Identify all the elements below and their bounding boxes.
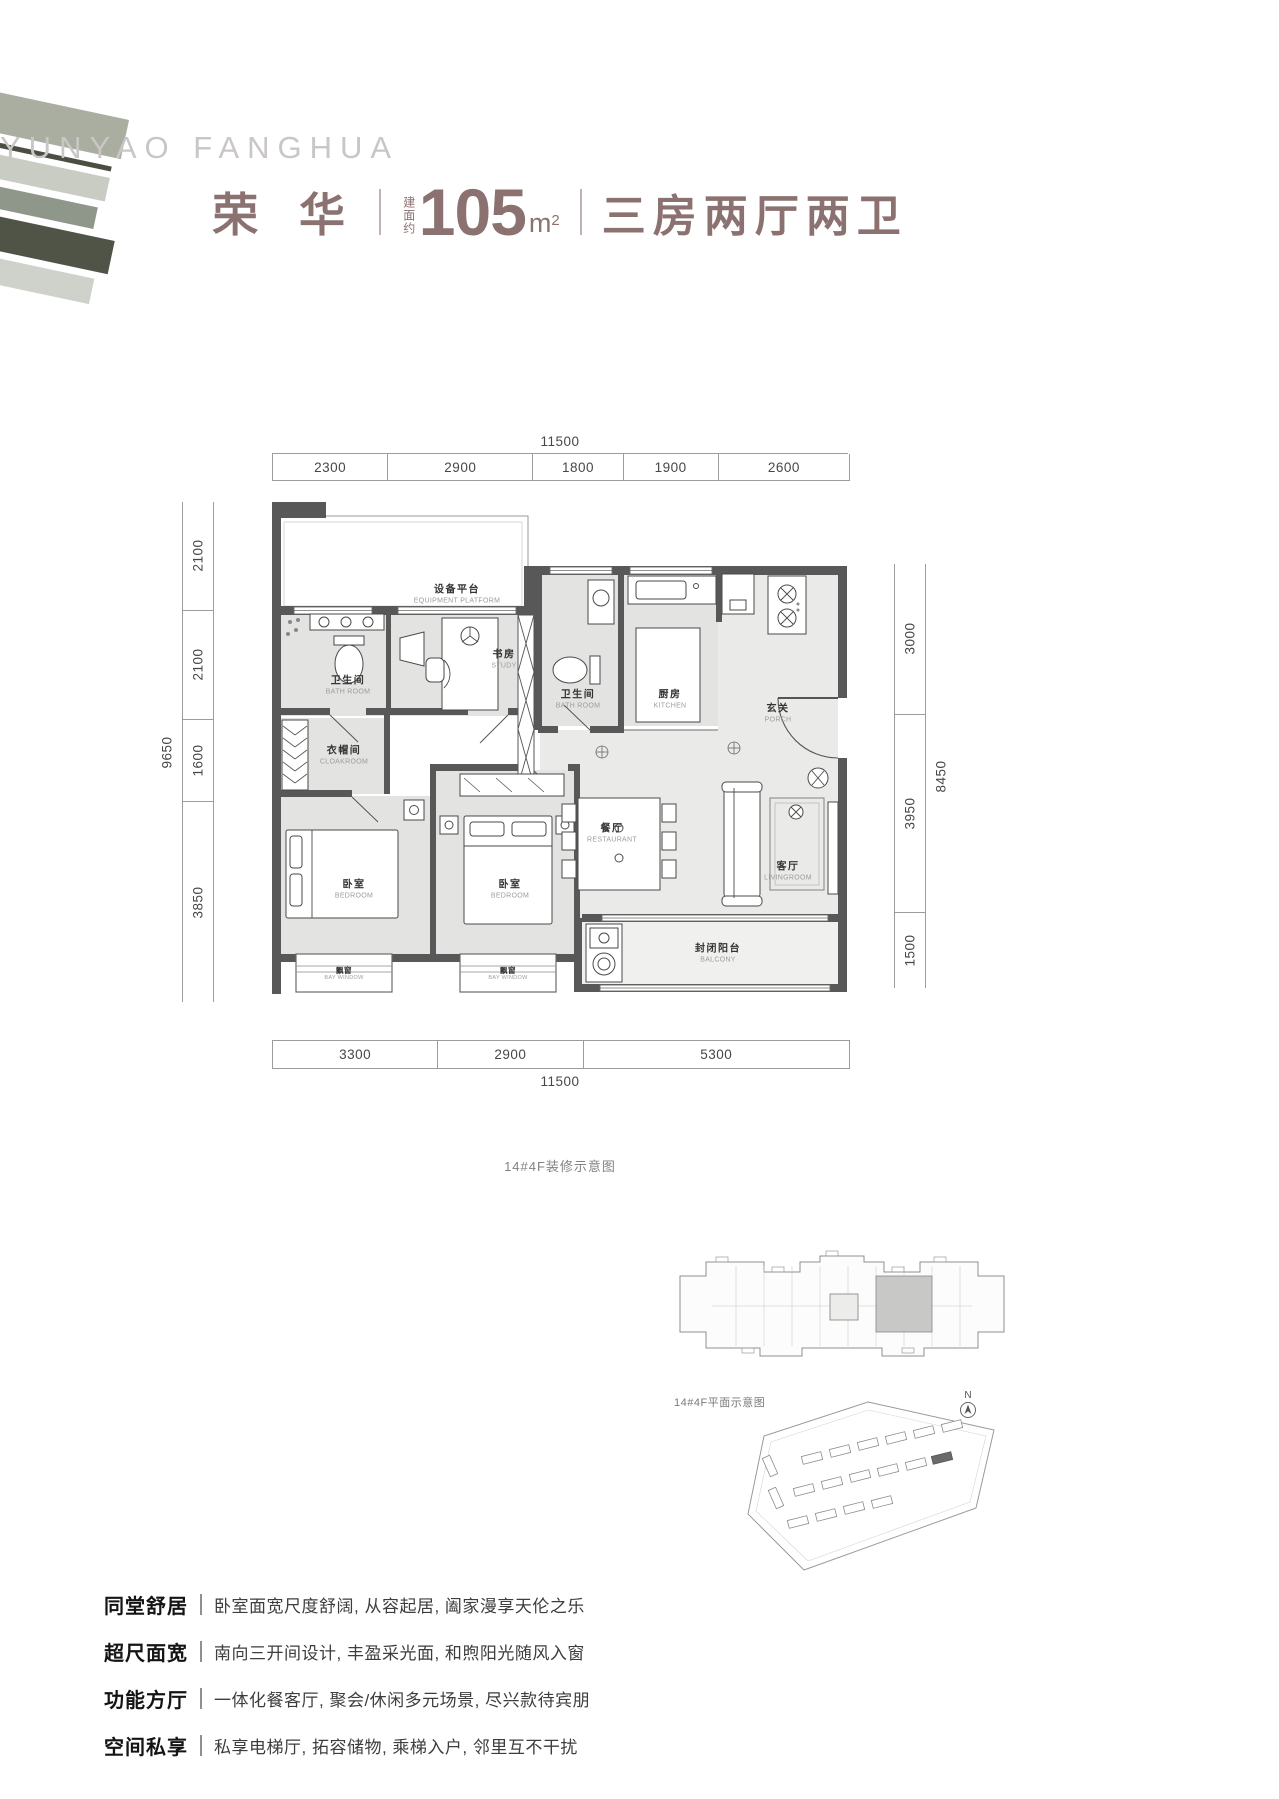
room-label-kitchen: 厨房KITCHEN <box>654 689 687 710</box>
room-label-dining: 餐厅RESTAURANT <box>587 823 637 844</box>
area-unit: m <box>529 205 552 243</box>
dim-value: 2100 <box>183 611 213 720</box>
feature-row: 同堂舒居 卧室面宽尺度舒阔, 从容起居, 阖家漫享天伦之乐 <box>104 1592 590 1616</box>
dim-total-right: 8450 <box>926 564 956 988</box>
room-label-cloakroom: 衣帽间CLOAKROOM <box>320 745 368 766</box>
room-label-bay-window-1: 飘窗BAY WINDOW <box>324 966 363 982</box>
room-label-bedroom-1: 卧室BEDROOM <box>335 879 373 900</box>
feature-list: 同堂舒居 卧室面宽尺度舒阔, 从容起居, 阖家漫享天伦之乐 超尺面宽 南向三开间… <box>104 1592 590 1780</box>
area-prefix: 建面约 <box>401 196 415 242</box>
feature-label: 超尺面宽 <box>104 1637 188 1666</box>
dim-chain-bottom: 3300 2900 5300 11500 <box>272 1040 848 1094</box>
dim-segments-right: 3000 3950 1500 <box>894 564 926 988</box>
feature-separator <box>200 1735 202 1756</box>
north-arrow-icon <box>959 1401 977 1419</box>
dim-segments-top: 2300 2900 1800 1900 2600 <box>272 454 850 481</box>
layout-type: 三房两厅两卫 <box>602 180 908 244</box>
title-divider <box>580 189 582 235</box>
dim-total-left: 9650 <box>152 502 182 1002</box>
room-label-porch: 玄关PORCH <box>765 703 792 724</box>
dim-value: 3300 <box>273 1041 438 1068</box>
room-label-bathroom-1: 卫生间BATH ROOM <box>326 675 371 696</box>
room-label-balcony: 封闭阳台BALCONY <box>695 943 741 964</box>
dim-value: 1800 <box>533 454 623 480</box>
dim-total-top: 11500 <box>272 430 848 454</box>
room-label-bathroom-2: 卫生间BATH ROOM <box>556 689 601 710</box>
site-plan <box>742 1398 1002 1583</box>
feature-separator <box>200 1641 202 1662</box>
north-arrow: N <box>956 1390 980 1419</box>
feature-label: 同堂舒居 <box>104 1590 188 1619</box>
feature-separator <box>200 1594 202 1615</box>
dim-segments-bottom: 3300 2900 5300 <box>272 1040 850 1069</box>
feature-separator <box>200 1688 202 1709</box>
dim-value: 9650 <box>160 736 175 768</box>
unit-name: 荣 华 <box>212 179 359 245</box>
dim-total-bottom: 11500 <box>272 1069 848 1094</box>
dim-value: 8450 <box>934 760 949 792</box>
dim-value: 2600 <box>719 454 849 480</box>
plan-title: 荣 华 建面约 105 m 2 三房两厅两卫 <box>0 176 1120 248</box>
area-unit-sup: 2 <box>551 213 559 228</box>
feature-label: 空间私享 <box>104 1731 188 1760</box>
dim-segments-left: 2100 2100 1600 3850 <box>182 502 214 1002</box>
feature-row: 空间私享 私享电梯厅, 拓容储物, 乘梯入户, 邻里互不干扰 <box>104 1733 590 1757</box>
dim-chain-top: 11500 2300 2900 1800 1900 2600 <box>272 430 848 481</box>
dim-value: 2300 <box>273 454 388 480</box>
north-label: N <box>964 1390 971 1401</box>
feature-text: 一体化餐客厅, 聚会/休闲多元场景, 尽兴款待宾朋 <box>214 1686 590 1711</box>
feature-row: 超尺面宽 南向三开间设计, 丰盈采光面, 和煦阳光随风入窗 <box>104 1639 590 1663</box>
dim-value: 3850 <box>183 802 213 1002</box>
dim-chain-right: 3000 3950 1500 8450 <box>894 564 956 988</box>
floorplate-diagram <box>672 1236 1012 1393</box>
room-label-bay-window-2: 飘窗BAY WINDOW <box>488 966 527 982</box>
dim-value: 1600 <box>183 720 213 803</box>
feature-text: 私享电梯厅, 拓容储物, 乘梯入户, 邻里互不干扰 <box>214 1733 578 1758</box>
feature-text: 卧室面宽尺度舒阔, 从容起居, 阖家漫享天伦之乐 <box>214 1592 585 1617</box>
feature-label: 功能方厅 <box>104 1684 188 1713</box>
dim-value: 1500 <box>895 913 925 988</box>
plan-caption: 14#4F装修示意图 <box>272 1156 848 1175</box>
room-label-bedroom-2: 卧室BEDROOM <box>491 879 529 900</box>
area-value: 105 <box>419 182 526 243</box>
feature-text: 南向三开间设计, 丰盈采光面, 和煦阳光随风入窗 <box>214 1639 585 1664</box>
floorplate-drawing <box>672 1236 1012 1388</box>
room-label-equipment-platform: 设备平台EQUIPMENT PLATFORM <box>414 584 500 605</box>
dim-value: 2900 <box>388 454 533 480</box>
room-label-living: 客厅LIVINGROOM <box>764 861 812 882</box>
dim-value: 5300 <box>584 1041 849 1068</box>
site-plan-drawing <box>742 1398 1002 1578</box>
dim-value: 2100 <box>183 502 213 611</box>
dim-chain-left: 9650 2100 2100 1600 3850 <box>152 502 214 1002</box>
dim-value: 3000 <box>895 564 925 715</box>
brand-name-en: YUNYAO FANGHUA <box>0 130 1120 166</box>
area-group: 建面约 105 m 2 <box>401 182 560 243</box>
feature-row: 功能方厅 一体化餐客厅, 聚会/休闲多元场景, 尽兴款待宾朋 <box>104 1686 590 1710</box>
dim-value: 1900 <box>624 454 719 480</box>
dim-value: 2900 <box>438 1041 583 1068</box>
dim-value: 3950 <box>895 715 925 913</box>
poster-page: YUNYAO FANGHUA 荣 华 建面约 105 m 2 三房两厅两卫 11… <box>0 0 1279 1799</box>
title-divider <box>379 189 381 235</box>
room-label-study: 书房STUDY <box>491 649 516 670</box>
floor-plan: 设备平台EQUIPMENT PLATFORM 卫生间BATH ROOM 书房ST… <box>272 502 850 1002</box>
